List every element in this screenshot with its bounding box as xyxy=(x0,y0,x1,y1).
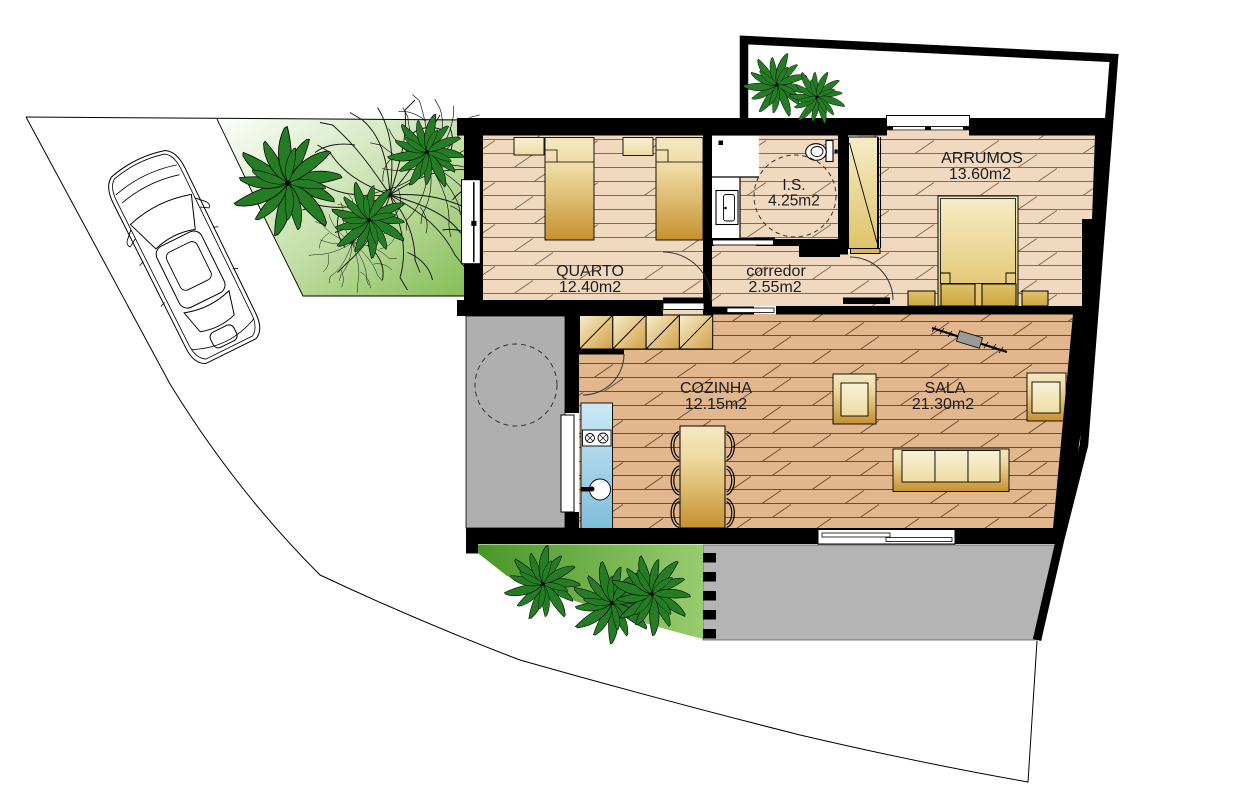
svg-text:I.S.: I.S. xyxy=(782,177,805,194)
svg-text:ARRUMOS: ARRUMOS xyxy=(941,150,1023,167)
svg-text:13.60m2: 13.60m2 xyxy=(949,166,1011,183)
svg-text:corredor: corredor xyxy=(746,263,806,280)
svg-text:QUARTO: QUARTO xyxy=(556,263,624,280)
svg-text:12.15m2: 12.15m2 xyxy=(685,396,747,413)
svg-text:COZINHA: COZINHA xyxy=(680,380,752,397)
svg-text:2.55m2: 2.55m2 xyxy=(748,279,801,296)
svg-text:21.30m2: 21.30m2 xyxy=(912,396,974,413)
svg-text:4.25m2: 4.25m2 xyxy=(768,193,820,210)
svg-text:SALA: SALA xyxy=(925,380,966,397)
svg-text:12.40m2: 12.40m2 xyxy=(559,279,621,296)
